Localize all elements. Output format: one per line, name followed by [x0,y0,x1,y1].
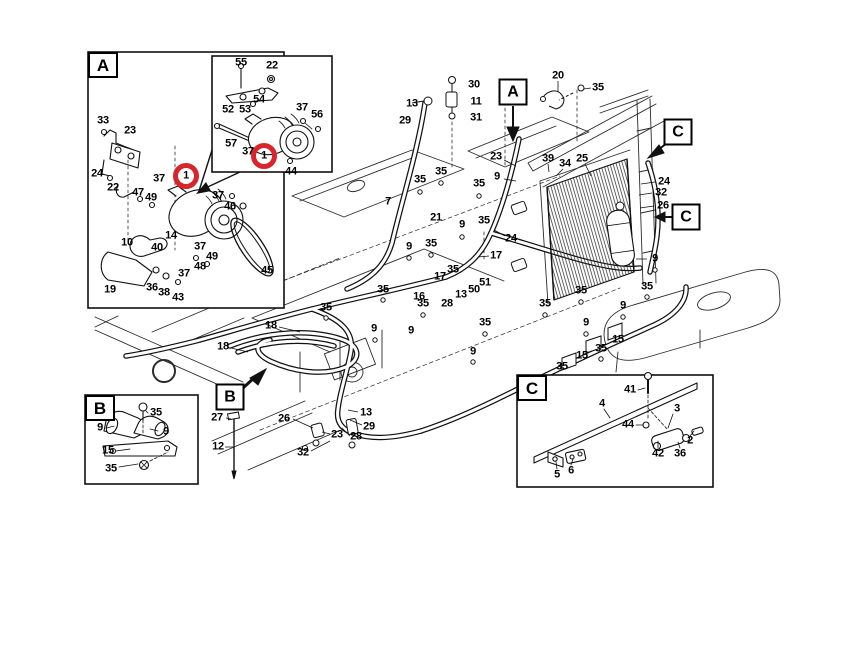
parts-diagram-page: { "diagram": { "type": "exploded-parts-d… [0,0,845,654]
diagram-line-art [0,0,845,654]
diagram-canvas: 3323242237474913746141040374948371936384… [0,0,845,654]
